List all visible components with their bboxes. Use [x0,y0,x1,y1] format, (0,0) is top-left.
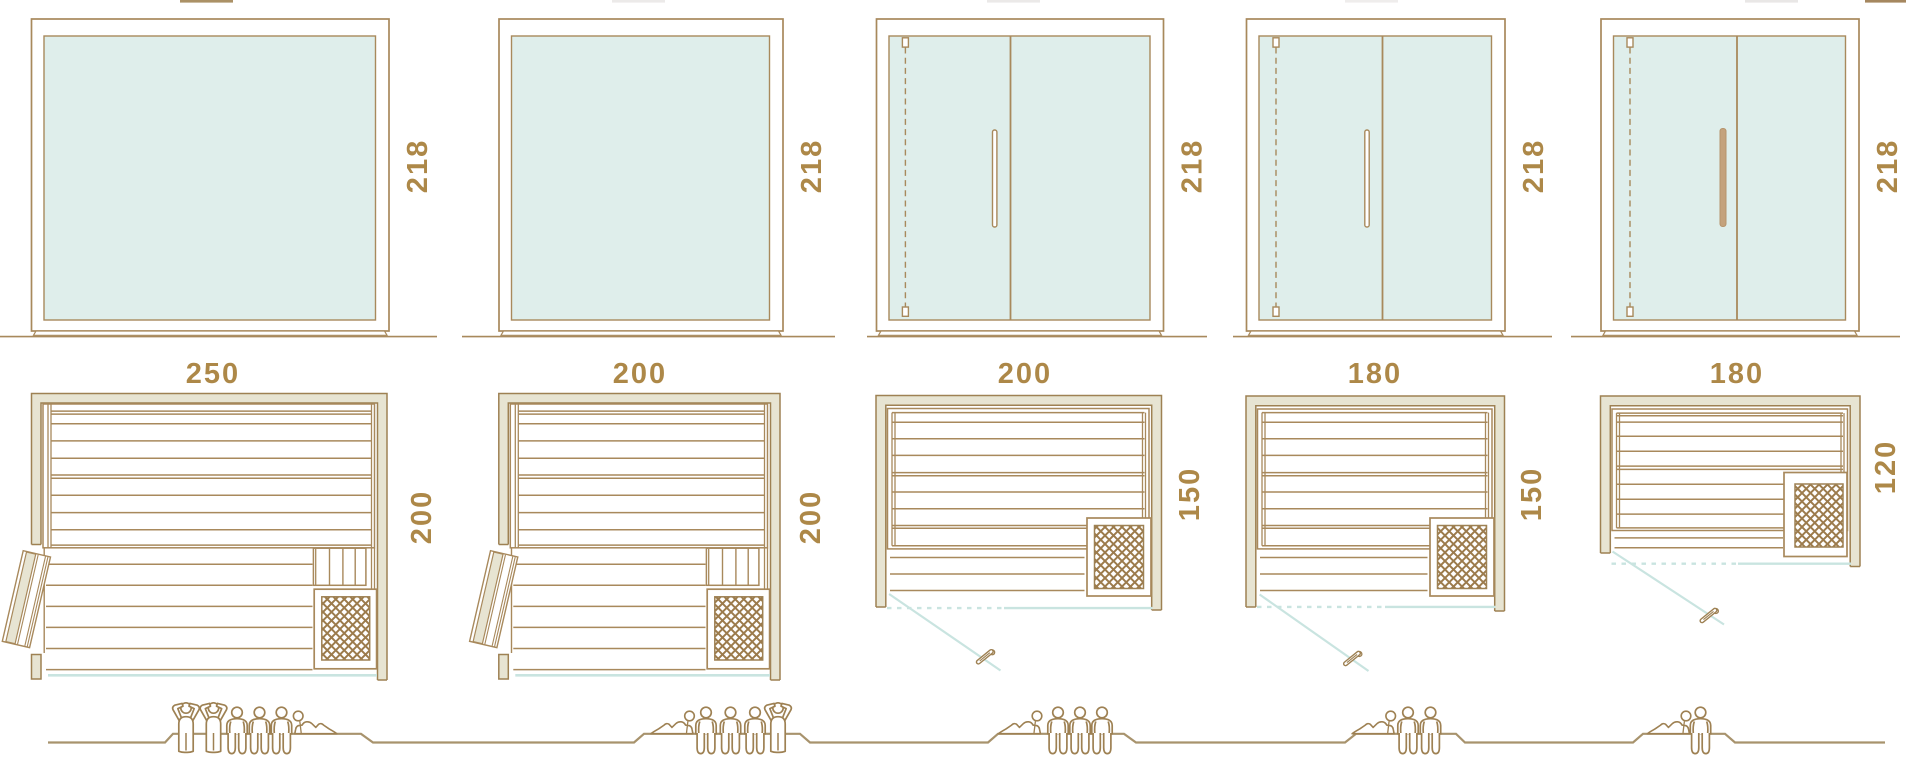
svg-text:150: 150 [1174,467,1206,521]
svg-text:218: 218 [796,139,828,193]
svg-text:180: 180 [1348,358,1402,390]
svg-text:218: 218 [402,139,434,193]
svg-text:200: 200 [406,490,438,544]
svg-text:180: 180 [1710,358,1764,390]
svg-text:250: 250 [186,358,240,390]
svg-text:218: 218 [1518,139,1550,193]
svg-text:200: 200 [998,358,1052,390]
svg-text:218: 218 [1177,139,1209,193]
svg-text:200: 200 [795,490,827,544]
svg-text:218: 218 [1872,139,1904,193]
svg-text:200: 200 [613,358,667,390]
svg-text:120: 120 [1870,440,1902,494]
svg-text:150: 150 [1516,467,1548,521]
